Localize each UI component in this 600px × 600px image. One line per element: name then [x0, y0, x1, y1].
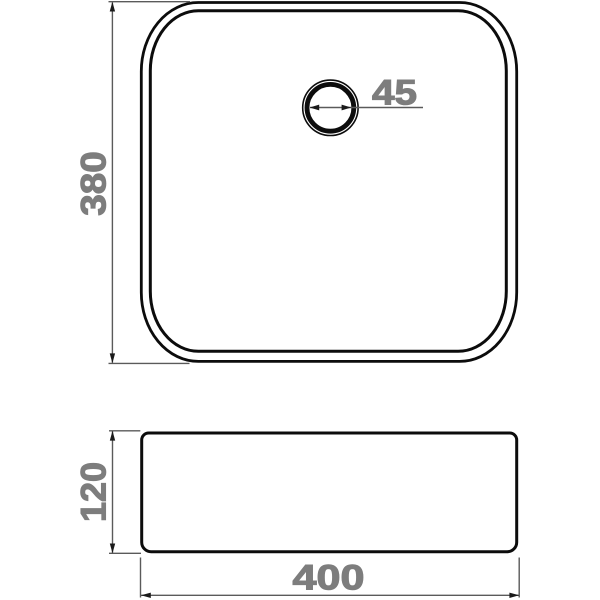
svg-text:120: 120: [75, 462, 114, 522]
svg-text:45: 45: [372, 74, 417, 113]
svg-text:400: 400: [293, 559, 365, 598]
svg-text:380: 380: [75, 151, 114, 216]
